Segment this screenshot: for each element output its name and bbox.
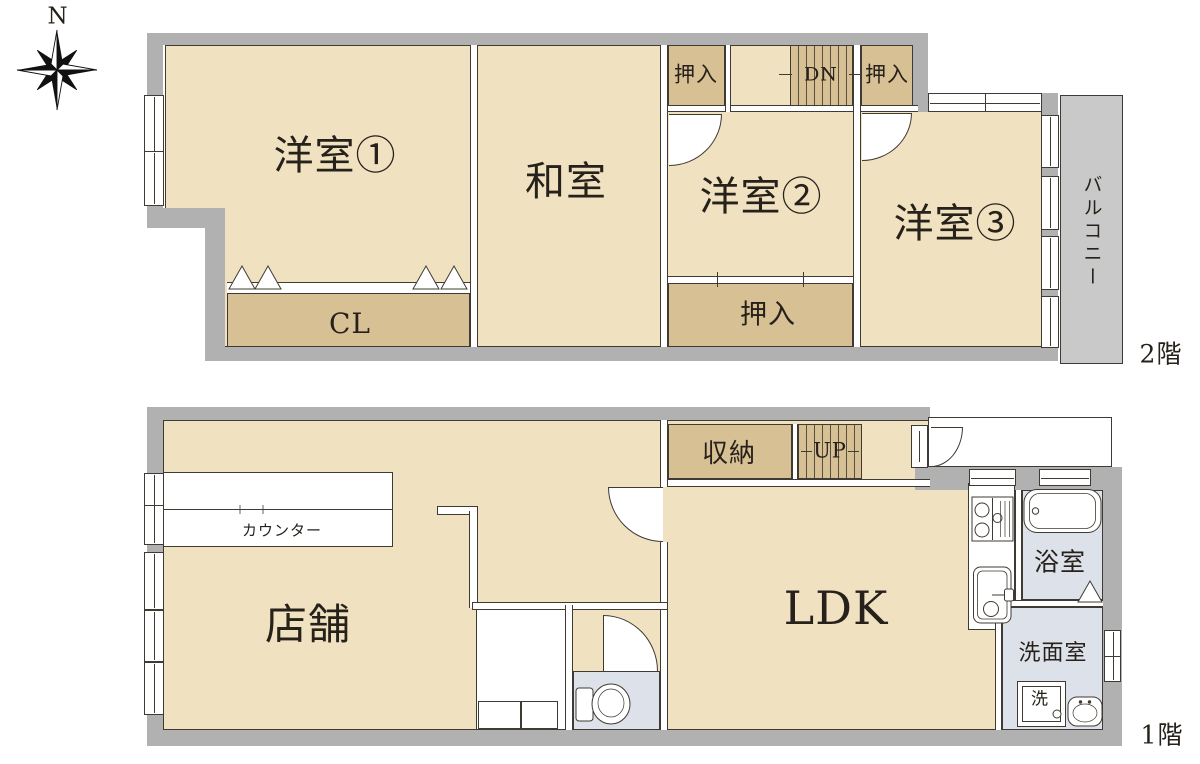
bathroom-area xyxy=(1022,490,1103,600)
window xyxy=(1041,236,1059,290)
window xyxy=(144,473,164,545)
closet-door-track xyxy=(227,282,470,294)
partition-wall xyxy=(565,605,573,730)
partition-wall xyxy=(470,45,478,347)
room-label-yoshitsu3: 洋室③ xyxy=(894,204,1017,244)
stairs-down-label: DN xyxy=(804,66,838,85)
bathroom-label: 浴室 xyxy=(1034,550,1086,575)
window-divider xyxy=(1105,656,1120,657)
stair-tread xyxy=(798,46,799,105)
partition-wall xyxy=(725,45,731,112)
stair-leader-line xyxy=(848,451,859,452)
window xyxy=(144,610,164,662)
exterior-wall xyxy=(147,407,930,420)
window xyxy=(1041,115,1059,168)
exterior-wall xyxy=(205,228,225,361)
stair-tread xyxy=(838,46,839,105)
window xyxy=(144,95,164,153)
exterior-wall xyxy=(1103,467,1122,746)
closet-label: 押入 xyxy=(740,302,796,329)
partition-wall xyxy=(469,511,478,608)
washer-label: 洗 xyxy=(1031,692,1049,709)
stair-leader-line xyxy=(849,74,862,75)
room-label-yoshitsu1: 洋室① xyxy=(274,136,397,176)
bathroom-door-track xyxy=(1002,600,1103,607)
exterior-wall xyxy=(147,730,1122,746)
door-track-tick xyxy=(717,272,718,287)
window xyxy=(969,469,1016,486)
entrance-wall-line xyxy=(919,431,920,462)
window xyxy=(144,151,164,206)
floor-1f-label: 1階 xyxy=(1141,723,1184,748)
partition-wall xyxy=(1015,490,1022,604)
window xyxy=(144,662,164,715)
floor-2f-label: 2階 xyxy=(1140,342,1183,367)
back-room-shelf xyxy=(478,701,521,729)
partition-wall xyxy=(853,45,861,347)
stair-leader-line xyxy=(801,451,812,452)
counter-line xyxy=(164,509,392,510)
stairs-up-label: UP xyxy=(813,441,847,462)
exterior-wall xyxy=(147,33,928,45)
outside-cutout xyxy=(147,228,205,368)
washroom-label: 洗面室 xyxy=(1018,643,1087,665)
window xyxy=(1041,176,1059,230)
outside-cutout xyxy=(928,45,1044,93)
balcony-label: バルコニー xyxy=(1082,175,1101,290)
storage-label: 収納 xyxy=(702,441,756,467)
sliding-door-track xyxy=(668,276,853,284)
window xyxy=(1039,469,1091,486)
window xyxy=(144,552,164,610)
closet-label: 押入 xyxy=(674,65,718,86)
counter-label: カウンター xyxy=(242,524,322,539)
toilet-room xyxy=(573,671,660,730)
closet-label: 押入 xyxy=(865,65,909,86)
stair-leader-line xyxy=(779,74,792,75)
ldk-top-wall xyxy=(668,479,930,487)
exterior-wall xyxy=(913,45,928,112)
back-room-shelf xyxy=(521,701,558,729)
window-divider xyxy=(985,94,986,111)
sliding-door-track xyxy=(668,105,918,112)
stair-tread xyxy=(846,46,847,105)
door-track-tick xyxy=(803,272,804,287)
partition-wall xyxy=(995,600,1002,730)
partition-wall xyxy=(660,420,668,487)
window-divider xyxy=(145,505,163,506)
closet-cl-label: CL xyxy=(329,310,371,338)
exterior-wall xyxy=(205,347,1058,361)
room-label-yoshitsu2: 洋室② xyxy=(700,177,823,217)
floor-plan-canvas: N xyxy=(0,0,1200,764)
room-label-ldk: LDK xyxy=(784,585,889,631)
exterior-wall xyxy=(147,208,225,228)
room-label-washitsu: 和室 xyxy=(525,162,607,202)
room-label-shop: 店舗 xyxy=(265,604,351,646)
partition-wall xyxy=(660,542,668,730)
partition-wall xyxy=(660,45,668,347)
compass-north-label: N xyxy=(47,6,68,29)
window xyxy=(1041,296,1059,348)
compass-rose-icon xyxy=(9,22,105,118)
